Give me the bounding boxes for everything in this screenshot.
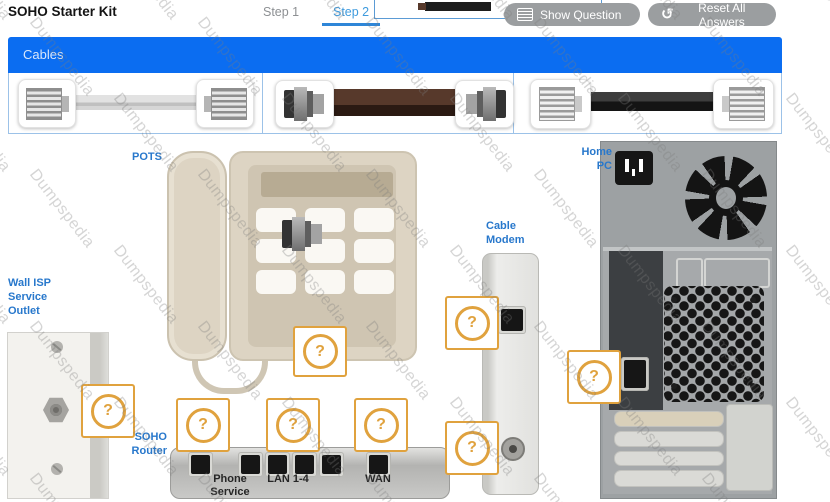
screw-icon <box>671 297 677 303</box>
active-tab-underline <box>322 23 380 26</box>
pc-io-cutout <box>704 258 770 288</box>
question-mark-icon: ? <box>364 408 399 443</box>
phone-display <box>261 172 393 197</box>
question-mark-icon: ? <box>303 334 338 369</box>
router-phone-port-label: Phone Service <box>206 473 254 499</box>
show-question-button[interactable]: Show Question <box>504 3 640 26</box>
router-wan-port-label: WAN <box>356 473 400 486</box>
cables-panel-title: Cables <box>23 37 63 73</box>
pc-ethernet-port <box>621 357 649 391</box>
question-mark-icon: ? <box>577 360 612 395</box>
pc-expansion-slot <box>614 470 724 487</box>
coaxial-cable-cord <box>326 89 462 116</box>
reset-label: Reset All Answers <box>681 1 763 29</box>
drop-target-modem-coax-port[interactable]: ? <box>445 421 499 475</box>
router-lan-ports-label: LAN 1-4 <box>262 473 314 486</box>
question-mark-icon: ? <box>276 408 311 443</box>
question-mark-icon: ? <box>186 408 221 443</box>
rj11-connector-icon <box>196 79 254 128</box>
router-lan4-port <box>319 452 344 477</box>
screw-icon <box>750 383 756 389</box>
rj45-connector-icon <box>713 79 774 129</box>
rj11-connector-icon <box>18 79 76 128</box>
reset-icon: ↺ <box>661 7 674 22</box>
drop-target-pc-ethernet-port[interactable]: ? <box>567 350 621 404</box>
pc-fan-icon <box>685 156 767 240</box>
rj45-connector-icon <box>530 79 591 129</box>
watermark-text: Dumpspedia <box>781 90 830 176</box>
watermark-text: Dumpspedia <box>781 242 830 328</box>
wall-outlet-label: Wall ISP Service Outlet <box>8 276 51 318</box>
screw-icon <box>750 297 756 303</box>
drop-target-modem-ethernet-port[interactable]: ? <box>445 296 499 350</box>
watermark-text: Dumpspedia <box>529 166 602 252</box>
pc-expansion-slot <box>614 411 724 427</box>
tab-step-2[interactable]: Step 2 <box>333 5 369 19</box>
drop-target-router-wan-port[interactable]: ? <box>354 398 408 452</box>
cable-fragment <box>425 2 491 11</box>
screw-icon <box>671 383 677 389</box>
coax-connector-on-phone[interactable] <box>282 217 324 251</box>
home-pc-label: Home PC <box>563 145 612 173</box>
modem-ethernet-port <box>498 306 526 334</box>
watermark-text: Dumpspedia <box>781 0 830 24</box>
ethernet-cable-cord <box>586 92 716 111</box>
f-type-connector-icon <box>275 80 334 128</box>
drop-target-router-lan-ports[interactable]: ? <box>266 398 320 452</box>
question-list-icon <box>517 8 533 21</box>
question-mark-icon: ? <box>455 306 490 341</box>
show-question-label: Show Question <box>540 8 621 22</box>
question-mark-icon: ? <box>455 431 490 466</box>
watermark-text: Dumpspedia <box>109 0 182 24</box>
reset-all-answers-button[interactable]: ↺ Reset All Answers <box>648 3 776 26</box>
coaxial-cable-item[interactable] <box>263 74 513 132</box>
pc-vent-grille <box>664 286 764 402</box>
pc-io-cutout <box>676 258 703 288</box>
cable-modem-label: Cable Modem <box>486 219 525 247</box>
telephone-cable-cord <box>60 95 210 110</box>
pc-expansion-slot <box>614 431 724 447</box>
f-type-connector-icon <box>455 80 514 128</box>
cables-panel-header: Cables <box>8 37 782 73</box>
phone-handset <box>167 151 227 361</box>
page-title: SOHO Starter Kit <box>8 4 117 19</box>
drop-target-wall-outlet[interactable]: ? <box>81 384 135 438</box>
telephone-cable-item[interactable] <box>9 74 261 132</box>
modem-coax-port <box>501 437 525 461</box>
question-mark-icon: ? <box>91 394 126 429</box>
ethernet-cable-item[interactable] <box>514 74 780 132</box>
pc-side-plate <box>726 404 773 491</box>
watermark-text: Dumpspedia <box>25 166 98 252</box>
phone-keypad <box>256 208 396 296</box>
pc-power-socket <box>615 151 653 185</box>
screw-icon <box>51 463 63 475</box>
drop-target-phone[interactable]: ? <box>293 326 347 377</box>
screw-icon <box>51 341 63 353</box>
drop-target-router-phone-port[interactable]: ? <box>176 398 230 452</box>
watermark-text: Dumpspedia <box>781 394 830 480</box>
pc-expansion-slot <box>614 451 724 466</box>
watermark-text: Dumpspedia <box>529 470 602 502</box>
soho-simulation-screen: SOHO Starter Kit Step 1 Step 2 Show Ques… <box>0 0 830 502</box>
pots-label: POTS <box>132 150 162 164</box>
tab-step-1[interactable]: Step 1 <box>263 5 299 19</box>
